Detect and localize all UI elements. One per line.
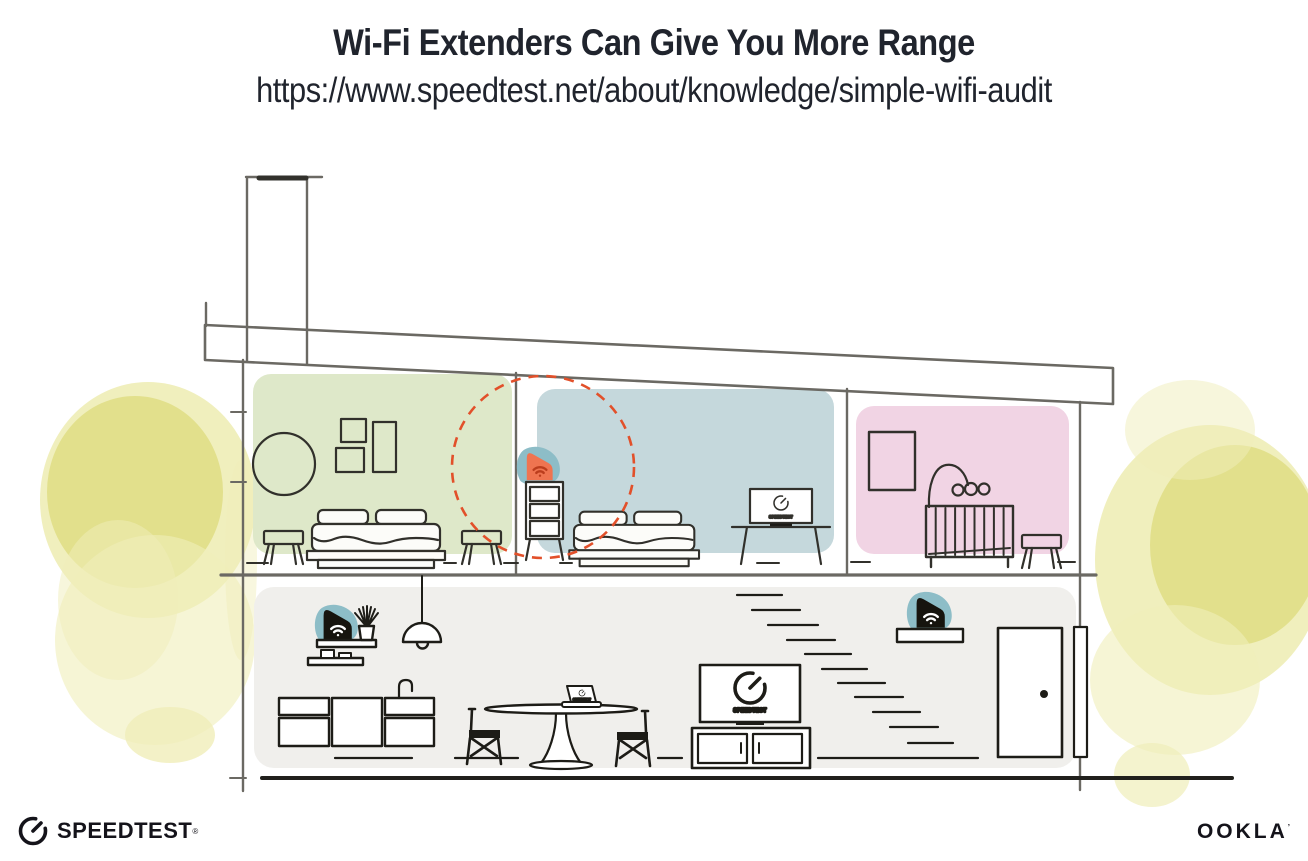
speedtest-logo: SPEEDTEST® — [16, 814, 198, 848]
speedtest-gauge-icon — [16, 814, 50, 848]
living-room-tv: SPEEDTEST — [700, 665, 800, 725]
door-knob — [1040, 690, 1048, 698]
speedtest-trademark: ® — [192, 827, 198, 836]
hall-shelf — [897, 629, 963, 642]
svg-text:SPEEDTEST: SPEEDTEST — [573, 699, 591, 702]
door-jamb — [1074, 627, 1087, 757]
speedtest-wordmark: SPEEDTEST — [57, 818, 192, 844]
house-cutaway-illustration: SPEEDTEST — [0, 0, 1308, 861]
nursery-wall-color — [856, 406, 1069, 554]
infographic-page: Wi-Fi Extenders Can Give You More Range … — [0, 0, 1308, 861]
foliage-left — [40, 382, 257, 763]
ookla-trademark: ’ — [1288, 823, 1290, 832]
svg-text:SPEEDTEST: SPEEDTEST — [769, 515, 793, 519]
bed-blue-room — [569, 512, 699, 567]
svg-text:SPEEDTEST: SPEEDTEST — [733, 708, 766, 714]
tv-console — [692, 728, 810, 768]
ookla-logo: OOKLA’ — [1197, 820, 1290, 844]
foliage-right — [1090, 380, 1308, 807]
bed-green-room — [307, 510, 445, 568]
ookla-wordmark: OOKLA — [1197, 820, 1288, 843]
front-door — [998, 628, 1062, 757]
